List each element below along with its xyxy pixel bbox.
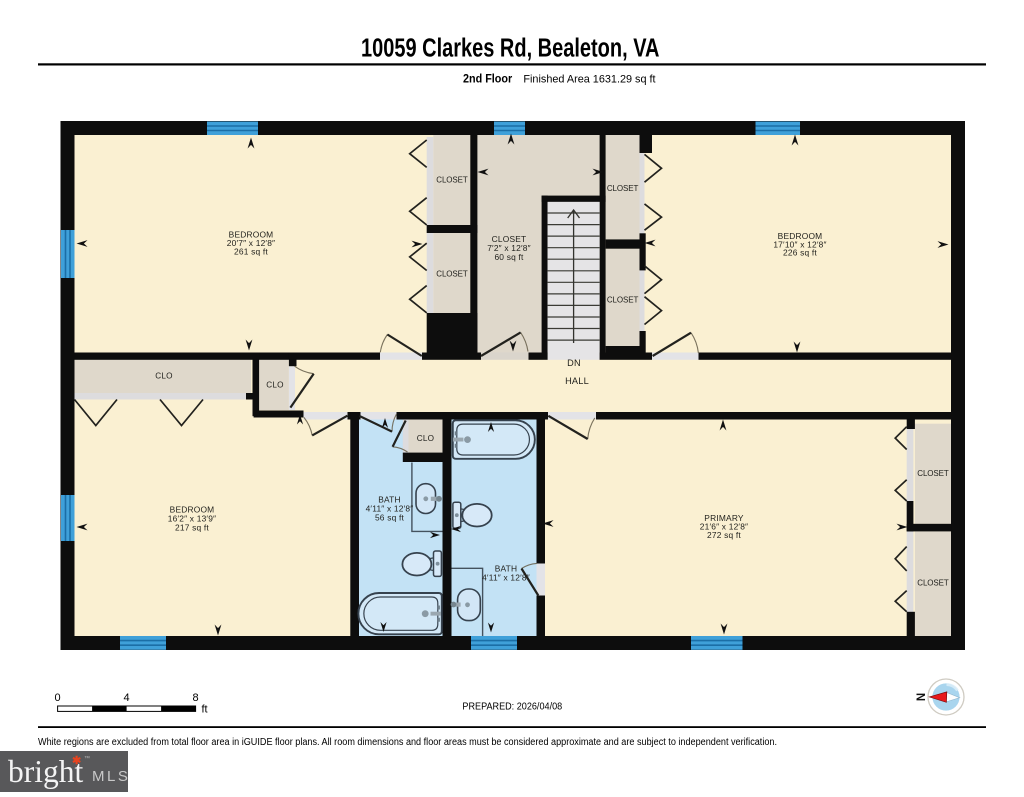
svg-text:2nd Floor: 2nd Floor: [463, 71, 513, 85]
svg-text:ft: ft: [202, 704, 208, 716]
svg-text:CLO: CLO: [155, 372, 172, 381]
svg-text:56 sq ft: 56 sq ft: [375, 513, 405, 523]
svg-text:60 sq ft: 60 sq ft: [494, 252, 524, 262]
svg-text:CLO: CLO: [266, 381, 283, 390]
svg-text:226 sq ft: 226 sq ft: [783, 248, 817, 258]
svg-text:CLOSET: CLOSET: [917, 469, 949, 478]
svg-text:White regions are excluded fro: White regions are excluded from total fl…: [38, 737, 777, 748]
svg-text:4′11″ x 12′8″: 4′11″ x 12′8″: [482, 573, 530, 583]
svg-text:DN: DN: [567, 358, 581, 368]
svg-text:MLS: MLS: [92, 768, 130, 785]
svg-text:8: 8: [193, 692, 199, 704]
svg-text:CLOSET: CLOSET: [436, 270, 468, 279]
svg-text:CLOSET: CLOSET: [917, 579, 949, 588]
svg-text:CLOSET: CLOSET: [607, 296, 639, 305]
svg-text:217 sq ft: 217 sq ft: [175, 523, 209, 533]
svg-text:0: 0: [55, 692, 61, 704]
svg-text:272 sq ft: 272 sq ft: [707, 530, 741, 540]
svg-text:✱: ✱: [72, 755, 81, 767]
svg-text:261 sq ft: 261 sq ft: [234, 247, 268, 257]
svg-text:CLOSET: CLOSET: [607, 184, 639, 193]
svg-text:10059 Clarkes Rd, Bealeton, VA: 10059 Clarkes Rd, Bealeton, VA: [361, 34, 660, 62]
svg-text:HALL: HALL: [565, 376, 589, 386]
svg-text:CLOSET: CLOSET: [436, 176, 468, 185]
svg-text:Finished Area 1631.29 sq ft: Finished Area 1631.29 sq ft: [523, 73, 656, 85]
svg-text:4: 4: [124, 692, 130, 704]
svg-text:N: N: [916, 693, 928, 701]
svg-text:CLO: CLO: [417, 434, 434, 443]
svg-text:™: ™: [84, 755, 90, 762]
svg-text:PREPARED: 2026/04/08: PREPARED: 2026/04/08: [462, 701, 562, 713]
